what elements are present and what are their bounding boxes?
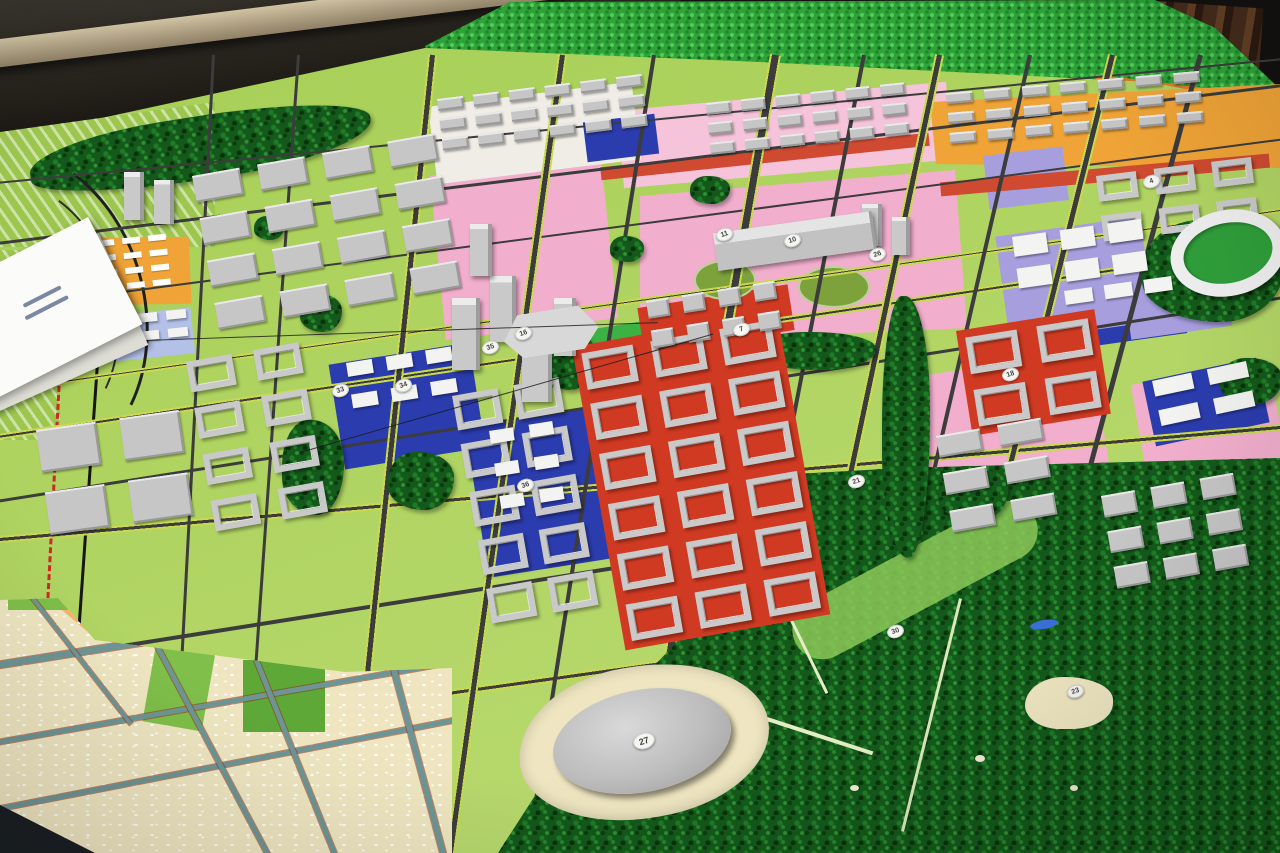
building-block xyxy=(582,98,609,113)
building-block xyxy=(987,127,1014,140)
building-block xyxy=(1101,490,1138,518)
building-block xyxy=(810,90,835,104)
building-block xyxy=(272,241,324,276)
building-block xyxy=(1012,232,1048,257)
building-block xyxy=(581,344,639,389)
building-block xyxy=(478,533,529,575)
building-block xyxy=(946,91,973,104)
building-block xyxy=(1025,124,1052,137)
building-block xyxy=(1060,226,1096,251)
building-block xyxy=(264,199,316,234)
building-block xyxy=(849,126,874,140)
building-block xyxy=(659,383,717,428)
tree-clump-10 xyxy=(690,176,730,204)
building-block xyxy=(626,596,684,641)
building-block xyxy=(394,176,446,211)
building-block xyxy=(473,91,500,106)
building-block xyxy=(1061,101,1088,114)
building-block xyxy=(1137,94,1164,107)
district-right-slabs xyxy=(936,418,1057,533)
building-block xyxy=(1101,117,1128,130)
building-block xyxy=(1135,74,1162,87)
building-block xyxy=(539,522,590,564)
building-block xyxy=(1063,121,1090,134)
building-block xyxy=(544,83,571,98)
building-block xyxy=(590,395,648,440)
building-block xyxy=(1156,517,1193,545)
building-block xyxy=(253,342,304,381)
building-block xyxy=(580,78,607,93)
building-block xyxy=(122,236,141,244)
building-block xyxy=(780,133,805,147)
building-block xyxy=(845,86,870,100)
building-block xyxy=(346,359,374,377)
building-block xyxy=(1004,455,1051,484)
district-right-grid xyxy=(956,309,1111,436)
building-block xyxy=(728,370,786,415)
building-block xyxy=(815,129,840,143)
building-block xyxy=(1097,77,1124,90)
building-block xyxy=(452,388,503,430)
building-block xyxy=(882,102,907,116)
building-block xyxy=(753,281,778,302)
building-block xyxy=(682,292,707,313)
building-block xyxy=(986,107,1013,120)
building-block xyxy=(708,120,733,134)
building-block xyxy=(737,421,795,466)
tower-building-6 xyxy=(154,180,174,224)
building-block xyxy=(425,346,453,364)
building-block xyxy=(599,445,657,490)
building-block xyxy=(125,266,144,274)
building-block xyxy=(757,310,782,331)
building-block xyxy=(1211,157,1254,188)
building-block xyxy=(880,82,905,96)
building-block xyxy=(439,116,466,131)
building-block xyxy=(608,495,666,540)
building-block xyxy=(194,400,245,439)
building-block xyxy=(776,93,801,107)
tower-building-4 xyxy=(470,224,492,276)
tower-building-0 xyxy=(452,298,480,370)
building-block xyxy=(329,187,381,222)
building-block xyxy=(1139,114,1166,127)
building-block xyxy=(717,286,742,307)
building-block xyxy=(261,388,312,427)
building-block xyxy=(508,87,535,102)
park-dot-a xyxy=(975,755,985,762)
park-clearing-small xyxy=(1025,677,1113,729)
building-block xyxy=(166,309,187,320)
building-block xyxy=(148,234,167,242)
building-block xyxy=(494,460,520,477)
building-block xyxy=(1173,71,1200,84)
building-block xyxy=(686,533,744,578)
building-block xyxy=(1060,81,1087,94)
building-block xyxy=(534,454,560,471)
park-dot-c xyxy=(1070,785,1078,791)
building-block xyxy=(668,433,726,478)
building-block xyxy=(706,100,731,114)
building-block xyxy=(1096,171,1139,202)
building-block xyxy=(1206,508,1243,536)
model-photo-scene: 1110264716353334182136302723 xyxy=(0,0,1280,853)
building-block xyxy=(710,140,735,154)
building-block xyxy=(207,252,259,287)
building-block xyxy=(151,264,170,272)
building-block xyxy=(489,427,515,444)
building-block xyxy=(1150,481,1187,509)
building-block xyxy=(1177,111,1204,124)
district-blue2-flats xyxy=(489,421,565,509)
building-block xyxy=(755,521,813,566)
building-block xyxy=(949,131,976,144)
building-block xyxy=(202,447,253,486)
park-dot-b xyxy=(850,785,859,791)
building-block xyxy=(743,117,768,131)
building-block xyxy=(437,96,464,111)
building-block xyxy=(123,251,142,259)
building-block xyxy=(119,410,184,461)
building-block xyxy=(847,106,872,120)
tower-building-5 xyxy=(124,172,144,220)
tree-clump-11 xyxy=(610,236,644,262)
building-block xyxy=(1107,219,1143,244)
building-block xyxy=(475,111,502,126)
district-farleft-blocks xyxy=(36,410,193,535)
building-block xyxy=(1175,91,1202,104)
tree-clump-2 xyxy=(388,452,454,510)
building-block xyxy=(677,483,735,528)
building-block xyxy=(1045,371,1102,416)
building-block xyxy=(1099,97,1126,110)
building-block xyxy=(402,218,454,253)
tree-clump-6 xyxy=(882,296,930,558)
building-block xyxy=(616,74,643,89)
building-block xyxy=(763,571,821,616)
building-block xyxy=(337,229,389,264)
tower-building-8 xyxy=(892,217,910,255)
building-block xyxy=(884,122,909,136)
building-block xyxy=(149,249,168,257)
building-block xyxy=(617,545,675,590)
building-block xyxy=(984,87,1011,100)
building-block xyxy=(36,422,101,473)
building-block xyxy=(186,354,237,393)
building-block xyxy=(386,353,414,371)
building-block xyxy=(128,472,193,523)
building-block xyxy=(1023,104,1050,117)
building-block xyxy=(269,435,320,474)
park-pond xyxy=(1029,618,1058,632)
building-block xyxy=(778,113,803,127)
building-block xyxy=(1022,84,1049,97)
building-block xyxy=(618,94,645,109)
building-block xyxy=(943,466,990,495)
building-block xyxy=(45,484,110,535)
building-block xyxy=(511,107,538,122)
building-block xyxy=(646,298,671,319)
building-block xyxy=(746,471,804,516)
building-block xyxy=(694,583,752,628)
park-path-c xyxy=(901,598,962,832)
building-block xyxy=(1036,318,1093,363)
building-block xyxy=(199,210,251,245)
building-block xyxy=(813,109,838,123)
building-block xyxy=(529,421,555,438)
building-block xyxy=(745,137,770,151)
building-block xyxy=(1199,473,1236,501)
building-block xyxy=(741,97,766,111)
building-block xyxy=(948,111,975,124)
building-block xyxy=(1107,526,1144,554)
building-block xyxy=(547,103,574,118)
